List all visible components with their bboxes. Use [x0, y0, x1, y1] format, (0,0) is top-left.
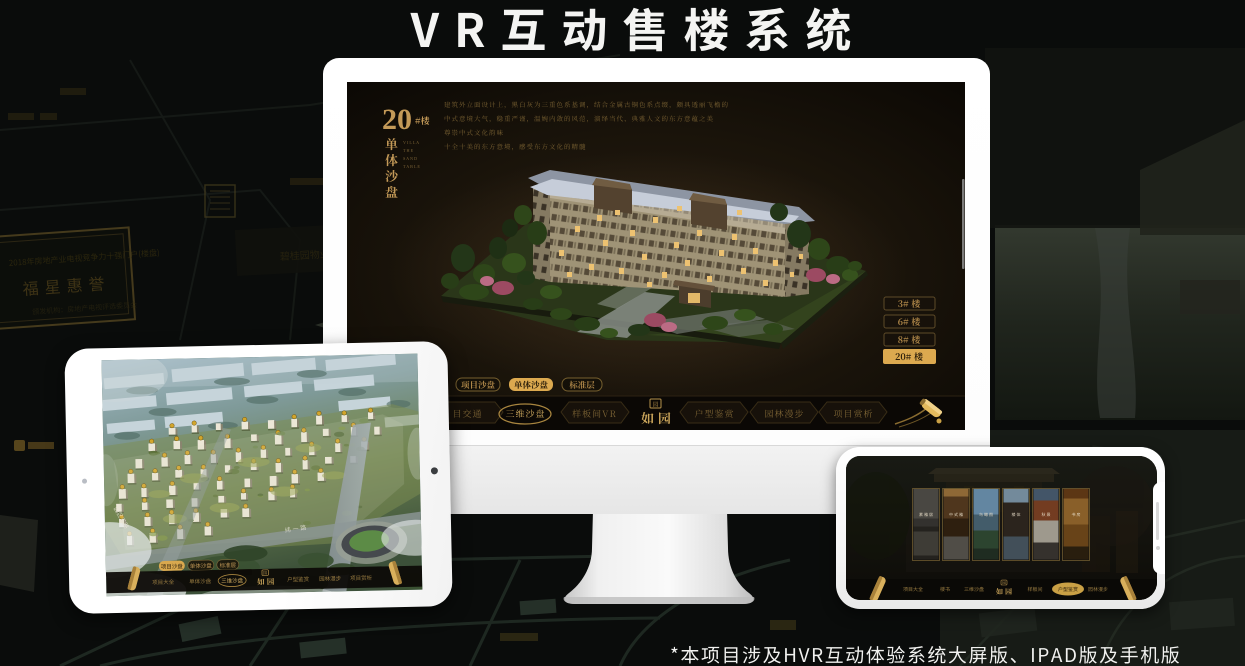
- svg-text:V I L L A: V I L L A: [403, 140, 419, 145]
- svg-text:T H E: T H E: [403, 148, 414, 153]
- svg-text:20: 20: [382, 103, 412, 136]
- svg-text:T A B L E: T A B L E: [403, 164, 420, 169]
- svg-text:S A N D: S A N D: [403, 156, 417, 161]
